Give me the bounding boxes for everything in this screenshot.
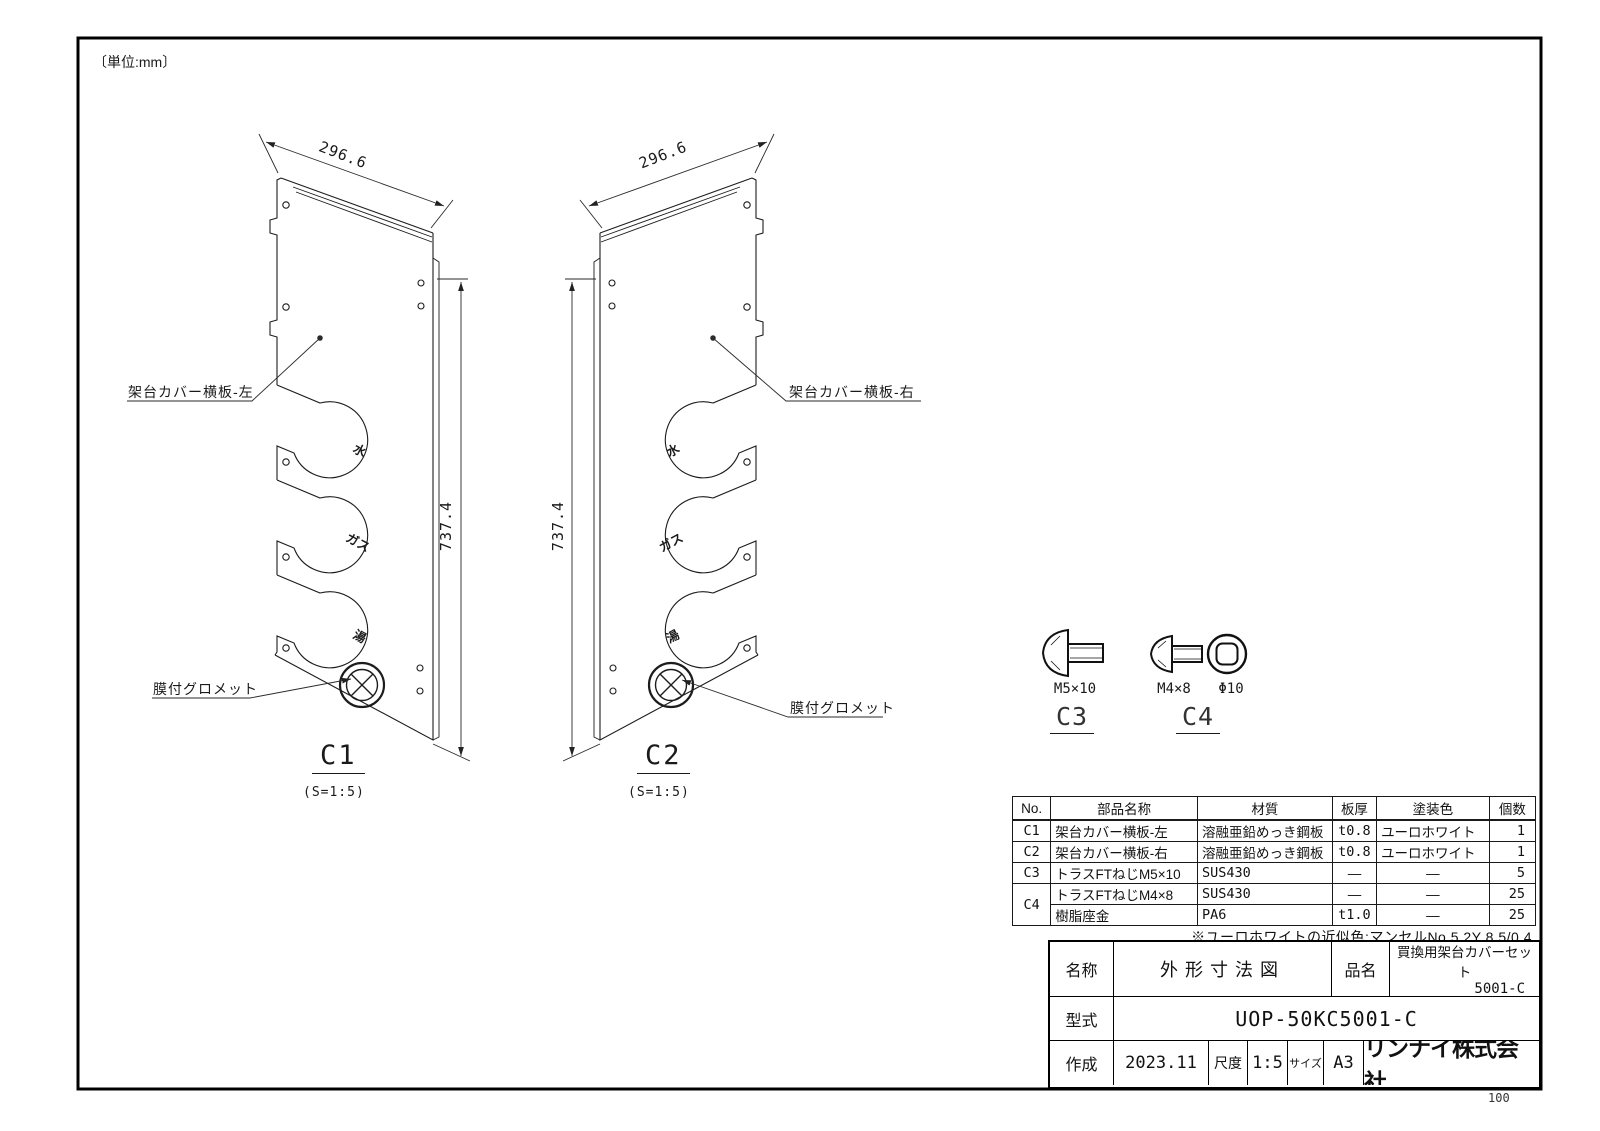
c2-part-label: 架台カバー横板-右: [789, 382, 915, 402]
col-paint-color: 塗装色: [1377, 797, 1490, 821]
row-color: —: [1377, 884, 1490, 905]
row-material: 溶融亜鉛めっき鋼板: [1198, 842, 1333, 863]
row-qty: 25: [1489, 905, 1535, 926]
col-part-name: 部品名称: [1051, 797, 1198, 821]
row-color: —: [1377, 863, 1490, 884]
table-row: 樹脂座金 PA6 t1.0 — 25: [1013, 905, 1536, 926]
product-value-line2: 5001-C: [1396, 981, 1533, 996]
row-material: PA6: [1198, 905, 1333, 926]
row-thickness: —: [1332, 863, 1376, 884]
created-value: 2023.11: [1114, 1041, 1209, 1085]
c2-view-scale: (S=1:5): [628, 785, 690, 800]
title-block-row-meta: 作成 2023.11 尺度 1:5 サイズ A3 リンナイ株式会社: [1050, 1041, 1539, 1085]
row-material: SUS430: [1198, 863, 1333, 884]
drawing-sheet: 〔単位:mm〕 296.6 737.4 架台カバー横板-左 膜付グロメット 水 …: [0, 0, 1600, 1131]
row-thickness: t1.0: [1332, 905, 1376, 926]
c4-screw-size-label: M4×8: [1142, 681, 1206, 697]
product-label: 品名: [1332, 942, 1390, 996]
parts-table: No. 部品名称 材質 板厚 塗装色 個数 C1 架台カバー横板-左 溶融亜鉛め…: [1012, 796, 1536, 926]
c2-height-dimension: 737.4: [549, 501, 567, 551]
row-color: ユーロホワイト: [1377, 820, 1490, 842]
page-number: 100: [1488, 1091, 1510, 1105]
c4-item-title: C4: [1176, 702, 1220, 734]
row-material: 溶融亜鉛めっき鋼板: [1198, 820, 1333, 842]
size-label: サイズ: [1288, 1041, 1324, 1085]
c1-height-dimension: 737.4: [437, 501, 455, 551]
grommet: [340, 663, 384, 707]
c4-washer-size-label: Φ10: [1199, 681, 1263, 697]
col-thickness: 板厚: [1332, 797, 1376, 821]
row-color: ユーロホワイト: [1377, 842, 1490, 863]
name-label: 名称: [1050, 942, 1114, 996]
parts-table-header: No. 部品名称 材質 板厚 塗装色 個数: [1013, 797, 1536, 821]
row-qty: 5: [1489, 863, 1535, 884]
table-row: C3 トラスFTねじM5×10 SUS430 — — 5: [1013, 863, 1536, 884]
model-value: UOP-50KC5001-C: [1114, 997, 1539, 1040]
row-no: C3: [1013, 863, 1051, 884]
col-material: 材質: [1198, 797, 1333, 821]
row-color: —: [1377, 905, 1490, 926]
col-quantity: 個数: [1489, 797, 1535, 821]
c3-screw-size-label: M5×10: [1038, 681, 1112, 697]
row-no: C4: [1013, 884, 1051, 926]
row-qty: 1: [1489, 842, 1535, 863]
title-block-row-name: 名称 外形寸法図 品名 買換用架台カバーセット 5001-C: [1050, 942, 1539, 997]
product-value: 買換用架台カバーセット 5001-C: [1390, 942, 1539, 996]
unit-label: 〔単位:mm〕: [93, 52, 176, 72]
c1-view-title: C1: [312, 740, 365, 774]
row-qty: 25: [1489, 884, 1535, 905]
row-name: 架台カバー横板-左: [1051, 820, 1198, 842]
table-row: C1 架台カバー横板-左 溶融亜鉛めっき鋼板 t0.8 ユーロホワイト 1: [1013, 820, 1536, 842]
created-label: 作成: [1050, 1041, 1114, 1085]
row-material: SUS430: [1198, 884, 1333, 905]
row-name: トラスFTねじM4×8: [1051, 884, 1198, 905]
title-block: 名称 外形寸法図 品名 買換用架台カバーセット 5001-C 型式 UOP-50…: [1048, 940, 1541, 1089]
name-value: 外形寸法図: [1114, 942, 1332, 996]
c1-grommet-label: 膜付グロメット: [153, 679, 258, 699]
scale-value: 1:5: [1248, 1041, 1288, 1085]
table-row: C2 架台カバー横板-右 溶融亜鉛めっき鋼板 t0.8 ユーロホワイト 1: [1013, 842, 1536, 863]
fastener-c3-drawing: [1043, 630, 1103, 676]
company-name: リンナイ株式会社: [1364, 1041, 1539, 1085]
c1-part-label: 架台カバー横板-左: [128, 382, 254, 402]
row-no: C1: [1013, 820, 1051, 842]
scale-label: 尺度: [1209, 1041, 1248, 1085]
size-value: A3: [1324, 1041, 1364, 1085]
table-row: C4 トラスFTねじM4×8 SUS430 — — 25: [1013, 884, 1536, 905]
row-name: 架台カバー横板-右: [1051, 842, 1198, 863]
row-thickness: t0.8: [1332, 820, 1376, 842]
fastener-c4-drawing: [1151, 635, 1246, 673]
row-qty: 1: [1489, 820, 1535, 842]
row-name: トラスFTねじM5×10: [1051, 863, 1198, 884]
model-label: 型式: [1050, 997, 1114, 1040]
col-no: No.: [1013, 797, 1051, 821]
c2-view-title: C2: [637, 740, 690, 774]
c3-item-title: C3: [1050, 702, 1094, 734]
product-value-line1: 買換用架台カバーセット: [1396, 942, 1533, 981]
row-thickness: —: [1332, 884, 1376, 905]
row-name: 樹脂座金: [1051, 905, 1198, 926]
c1-view-scale: (S=1:5): [303, 785, 365, 800]
row-no: C2: [1013, 842, 1051, 863]
row-thickness: t0.8: [1332, 842, 1376, 863]
title-block-row-model: 型式 UOP-50KC5001-C: [1050, 997, 1539, 1041]
c2-grommet-label: 膜付グロメット: [790, 698, 895, 718]
